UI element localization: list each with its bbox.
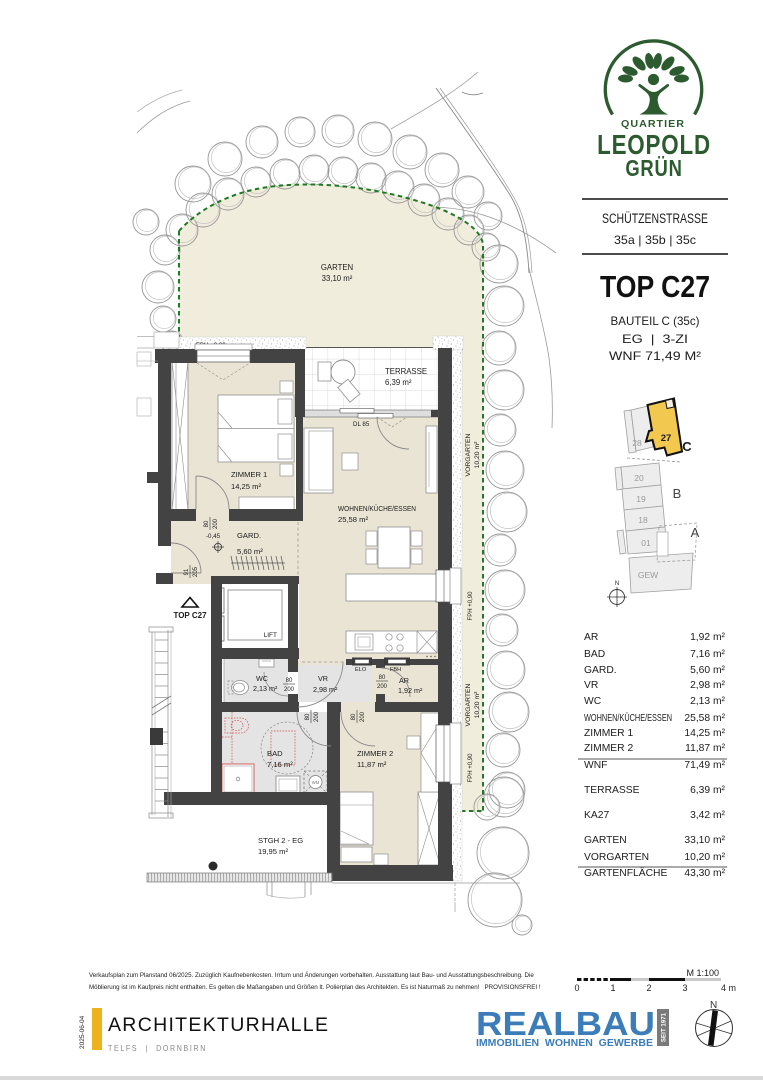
svg-text:91: 91 [184,568,190,575]
svg-text:M 1:100: M 1:100 [686,968,719,978]
svg-text:80: 80 [204,520,210,527]
svg-text:C: C [682,439,692,454]
svg-text:19: 19 [636,494,646,504]
svg-text:IMMOBILIEN WOHNEN GEWERBE: IMMOBILIEN WOHNEN GEWERBE [476,1037,653,1049]
svg-text:25,58 m²: 25,58 m² [338,515,368,524]
svg-text:5,60 m²: 5,60 m² [237,547,263,556]
svg-text:10,20 m²: 10,20 m² [474,691,481,719]
svg-text:200: 200 [213,518,219,529]
svg-text:WOHNEN/KÜCHE/ESSEN: WOHNEN/KÜCHE/ESSEN [338,504,416,513]
svg-text:WNF: WNF [584,760,607,771]
svg-text:ZIMMER 2: ZIMMER 2 [584,743,633,754]
svg-text:GARTENFLÄCHE: GARTENFLÄCHE [584,867,667,879]
svg-text:80: 80 [351,713,357,720]
svg-text:3: 3 [682,983,687,993]
svg-text:Möblierung ist im Kaufpreis ni: Möblierung ist im Kaufpreis nicht enthal… [89,984,541,991]
svg-text:ZIMMER 2: ZIMMER 2 [357,749,393,758]
svg-text:GARTEN: GARTEN [321,263,353,272]
svg-text:STGH 2 - EG: STGH 2 - EG [258,836,303,845]
svg-text:TOP C27: TOP C27 [600,269,710,304]
svg-text:LIFT: LIFT [264,632,277,639]
svg-text:80: 80 [286,678,293,684]
svg-text:2025-06-04: 2025-06-04 [79,1015,86,1049]
svg-text:GARD.: GARD. [584,665,617,676]
svg-text:80: 80 [305,713,311,720]
svg-text:AR: AR [584,632,598,643]
svg-text:KA27: KA27 [584,810,609,821]
svg-text:BAUTEIL C (35c): BAUTEIL C (35c) [611,314,700,328]
svg-text:4 m: 4 m [721,983,736,993]
svg-text:WC: WC [256,674,268,683]
svg-text:ELO: ELO [355,667,367,673]
svg-text:0: 0 [574,983,579,993]
svg-text:N: N [615,581,619,587]
svg-text:N: N [710,1000,717,1011]
svg-text:200: 200 [284,687,295,693]
svg-text:2,13 m²: 2,13 m² [690,696,725,707]
svg-text:11,87 m²: 11,87 m² [685,743,725,754]
svg-text:WC: WC [584,696,602,707]
svg-text:2: 2 [646,983,651,993]
svg-text:TERRASSE: TERRASSE [385,367,427,376]
svg-text:FPH +0,90: FPH +0,90 [468,591,474,621]
svg-text:SEIT 1971: SEIT 1971 [661,1012,668,1042]
svg-text:18: 18 [638,515,648,525]
svg-text:WNF 71,49 M²: WNF 71,49 M² [609,349,701,363]
svg-text:Verkaufsplan zum Planstand 06/: Verkaufsplan zum Planstand 06/2025. Zuzü… [89,972,534,979]
svg-text:6,39 m²: 6,39 m² [385,378,412,387]
svg-text:11,87 m²: 11,87 m² [357,760,387,769]
svg-text:GRÜN: GRÜN [625,156,682,181]
svg-text:28: 28 [632,438,642,448]
svg-text:TERRASSE: TERRASSE [584,785,640,796]
svg-text:BAD: BAD [584,649,605,660]
svg-text:SCHÜTZENSTRASSE: SCHÜTZENSTRASSE [602,211,708,226]
svg-text:7,16 m²: 7,16 m² [267,760,293,769]
svg-text:VR: VR [318,674,328,683]
svg-text:ARCHITEKTURHALLE: ARCHITEKTURHALLE [108,1014,329,1036]
svg-text:1,92 m²: 1,92 m² [690,632,725,643]
svg-text:QUARTIER: QUARTIER [621,118,685,130]
svg-text:ZIMMER 1: ZIMMER 1 [584,728,633,739]
svg-text:71,49 m²: 71,49 m² [684,760,725,771]
svg-text:EG | 3-ZI: EG | 3-ZI [622,332,688,346]
svg-text:FBH: FBH [390,667,401,673]
svg-text:DL 85: DL 85 [353,421,370,428]
svg-text:25,58 m²: 25,58 m² [684,713,725,724]
svg-text:VORGARTEN: VORGARTEN [465,433,472,476]
svg-text:VORGARTEN: VORGARTEN [465,683,472,726]
svg-text:B: B [673,486,682,501]
svg-text:205: 205 [193,566,199,577]
svg-text:10,20 m²: 10,20 m² [684,852,725,863]
svg-text:2,98 m²: 2,98 m² [690,680,725,691]
svg-text:AR: AR [399,676,409,685]
svg-text:200: 200 [360,711,366,722]
svg-text:35a | 35b | 35c: 35a | 35b | 35c [614,233,696,247]
svg-text:GEW: GEW [638,570,658,580]
svg-text:1,92 m²: 1,92 m² [398,686,423,695]
svg-text:GARTEN: GARTEN [584,835,627,846]
svg-text:19,95 m²: 19,95 m² [258,847,288,856]
svg-text:GARD.: GARD. [237,531,261,540]
svg-text:-0,45: -0,45 [206,533,221,540]
svg-text:2,98 m²: 2,98 m² [313,685,338,694]
svg-text:14,25 m²: 14,25 m² [231,482,261,491]
svg-text:14,25 m²: 14,25 m² [684,728,725,739]
svg-text:1: 1 [610,983,615,993]
svg-text:80: 80 [379,675,386,681]
svg-text:VORGARTEN: VORGARTEN [584,852,649,863]
svg-text:33,10 m²: 33,10 m² [684,835,725,846]
svg-text:TOP C27: TOP C27 [173,611,207,620]
svg-text:7,16 m²: 7,16 m² [690,649,725,660]
svg-text:WM: WM [312,780,320,785]
svg-text:33,10 m²: 33,10 m² [322,274,353,283]
svg-text:01: 01 [641,538,651,548]
svg-text:10,20 m²: 10,20 m² [474,441,481,469]
svg-text:WOHNEN/KÜCHE/ESSEN: WOHNEN/KÜCHE/ESSEN [584,712,672,724]
svg-text:200: 200 [314,711,320,722]
svg-text:5,60 m²: 5,60 m² [690,665,725,676]
svg-text:A: A [691,525,700,540]
svg-text:2,13 m²: 2,13 m² [253,684,278,693]
svg-text:200: 200 [377,684,388,690]
svg-text:43,30 m²: 43,30 m² [684,868,725,879]
svg-text:3,42 m²: 3,42 m² [690,810,725,821]
svg-text:VR: VR [584,680,598,691]
svg-text:ZIMMER 1: ZIMMER 1 [231,470,267,479]
svg-text:20: 20 [634,473,644,483]
svg-text:TELFS | DORNBIRN: TELFS | DORNBIRN [108,1043,207,1053]
svg-text:6,39 m²: 6,39 m² [690,785,725,796]
svg-text:FPH +0,90: FPH +0,90 [468,753,474,783]
svg-text:BAD: BAD [267,749,283,758]
svg-text:27: 27 [661,433,672,444]
